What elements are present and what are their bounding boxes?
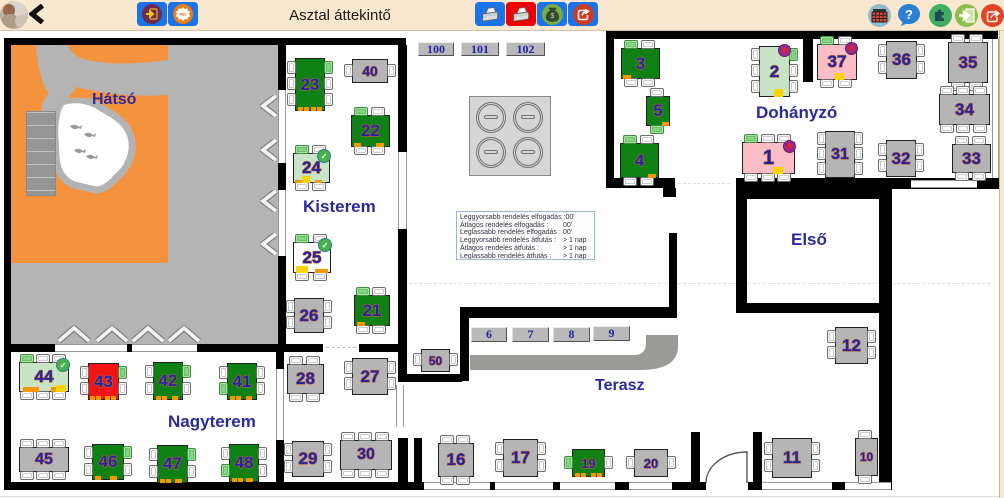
svg-text:RES: RES bbox=[179, 13, 187, 17]
svg-text:$: $ bbox=[550, 13, 554, 20]
svg-text:?: ? bbox=[905, 7, 913, 22]
